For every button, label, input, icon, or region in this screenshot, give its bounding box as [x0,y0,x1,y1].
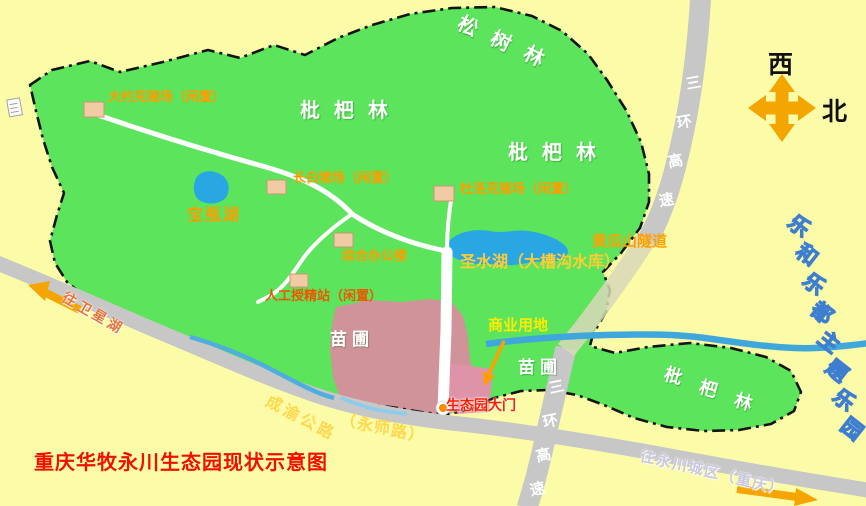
baoping-lake-label: 宝瓶湖 [187,207,241,223]
yorkshire-farm-label: 大约克猪场（闲置） [108,91,225,104]
office-building-shape [334,233,353,247]
entrance-road [443,252,447,408]
duroc-farm-label: 杜洛克猪场（闲置） [460,183,577,196]
map-title: 重庆华牧永川生态园现状示意图 [34,452,328,472]
document-icon [7,98,23,117]
landrace-farm-building [267,180,286,194]
landrace-farm-label: 长白猪场（闲置） [293,172,397,185]
office-building-label: 综合办公楼 [342,250,407,263]
park-gate-label: 生态园大门 [446,399,516,413]
duroc-farm-building [434,186,454,201]
compass-west-label: 西 [768,45,793,81]
nursery-label-left: 苗圃 [330,332,374,349]
loquat-forest-label-mid: 枇杷林 [508,142,610,162]
yorkshire-farm-building [84,102,104,117]
huanggua-tunnel-label: 黄瓜山隧道 [592,234,667,249]
nursery-label-right: 苗圃 [518,360,562,377]
insemination-station-label: 人工授精站（闲置） [265,290,382,303]
insemination-station-building [290,274,308,287]
commercial-land-label: 商业用地 [488,318,548,333]
ecological-park-map: 松树林 枇杷林 枇杷林 枇杷林 宝瓶湖 圣水湖（大槽沟水库） 大约克猪场（闲置）… [0,0,866,506]
loquat-forest-label-top: 枇杷林 [300,100,402,120]
map-graphics [0,0,866,506]
compass-north-label: 北 [822,92,847,128]
shengshui-lake-label: 圣水湖（大槽沟水库） [460,254,620,270]
